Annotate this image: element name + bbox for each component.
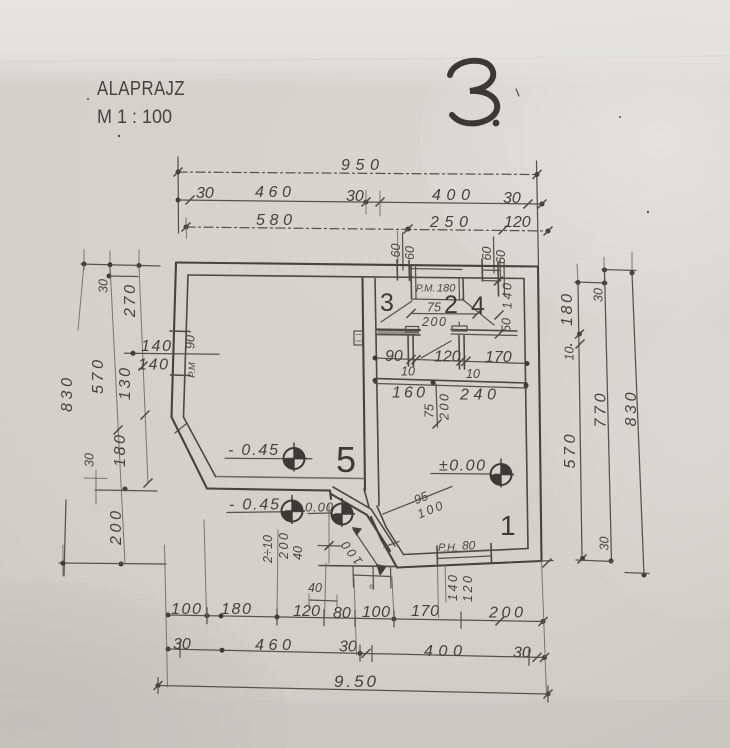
svg-text:30: 30 [83, 453, 97, 467]
svg-text:130: 130 [117, 368, 134, 400]
svg-text:120: 120 [434, 349, 461, 366]
svg-text:770: 770 [593, 393, 610, 427]
svg-text:570: 570 [562, 434, 579, 468]
svg-text:140: 140 [446, 575, 460, 601]
svg-text:P.M.: P.M. [416, 284, 435, 295]
svg-text:270: 270 [122, 285, 139, 318]
svg-text:180: 180 [221, 601, 251, 618]
svg-text:30: 30 [339, 639, 357, 656]
svg-text:140: 140 [138, 357, 168, 374]
svg-text:9.50: 9.50 [334, 672, 377, 691]
svg-text:460: 460 [255, 184, 291, 201]
svg-text:30: 30 [503, 190, 521, 207]
svg-text:400: 400 [424, 643, 462, 660]
svg-text:4: 4 [471, 292, 485, 320]
svg-text:160: 160 [392, 385, 425, 402]
svg-text:ALAPRAJZ: ALAPRAJZ [97, 78, 185, 100]
svg-text:60: 60 [389, 244, 403, 258]
svg-text:1: 1 [500, 510, 516, 541]
svg-text:2: 2 [444, 291, 458, 319]
svg-text:140: 140 [141, 338, 171, 355]
svg-text:40: 40 [291, 546, 305, 560]
svg-text:P.H.: P.H. [438, 542, 458, 554]
svg-text:180: 180 [112, 435, 129, 467]
svg-text:200: 200 [277, 533, 291, 560]
svg-text:830: 830 [59, 378, 76, 412]
svg-text:580: 580 [256, 212, 292, 229]
svg-text:M 1 : 100: M 1 : 100 [97, 107, 172, 128]
svg-text:2÷10: 2÷10 [261, 535, 275, 564]
svg-text:400: 400 [432, 187, 470, 204]
svg-text:90: 90 [385, 348, 403, 365]
svg-text:60: 60 [494, 250, 508, 264]
svg-text:- 0.45: - 0.45 [229, 497, 279, 514]
svg-text:80: 80 [462, 539, 476, 553]
svg-text:10: 10 [466, 367, 480, 381]
svg-text:75: 75 [423, 404, 437, 418]
svg-text:200: 200 [421, 315, 446, 329]
svg-text:950: 950 [341, 157, 379, 174]
svg-text:30: 30 [592, 288, 606, 302]
svg-text:10: 10 [401, 365, 415, 379]
svg-text:5: 5 [336, 439, 356, 480]
svg-text:460: 460 [255, 637, 291, 654]
svg-text:570: 570 [90, 360, 107, 394]
svg-text:200: 200 [108, 511, 125, 546]
svg-text:170: 170 [411, 603, 439, 620]
svg-text:200: 200 [488, 605, 523, 622]
svg-text:250: 250 [429, 214, 468, 231]
svg-text:170: 170 [485, 349, 512, 366]
svg-text:40: 40 [308, 581, 322, 595]
svg-text:10: 10 [563, 347, 577, 361]
svg-text:240: 240 [459, 387, 496, 404]
svg-text:140: 140 [501, 283, 515, 309]
svg-text:30: 30 [196, 185, 214, 202]
svg-text:30: 30 [513, 645, 531, 662]
svg-text:60: 60 [403, 246, 417, 260]
svg-text:80: 80 [333, 605, 351, 622]
svg-text:100: 100 [171, 601, 201, 618]
svg-text:100: 100 [362, 604, 390, 621]
svg-text:830: 830 [623, 392, 640, 426]
svg-text:120: 120 [504, 214, 531, 231]
svg-text:120: 120 [293, 603, 320, 620]
svg-text:75: 75 [427, 301, 441, 315]
svg-text:30: 30 [598, 537, 612, 551]
svg-text:3: 3 [380, 289, 394, 317]
svg-text:180: 180 [559, 294, 576, 326]
svg-text:200: 200 [438, 394, 452, 421]
svg-text:30: 30 [346, 188, 364, 205]
svg-text:30: 30 [173, 636, 191, 653]
svg-text:30: 30 [97, 279, 111, 293]
svg-text:±0.00: ±0.00 [439, 458, 485, 475]
svg-text:120: 120 [461, 576, 475, 602]
svg-text:- 0.45: - 0.45 [228, 442, 278, 459]
